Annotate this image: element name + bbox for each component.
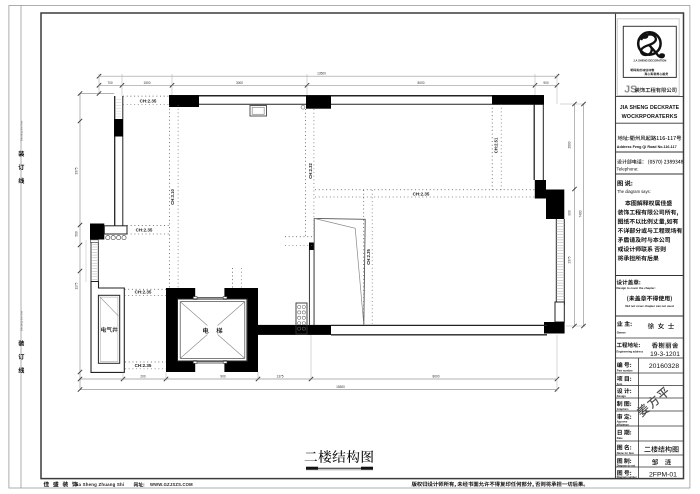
- svg-text:900: 900: [543, 81, 549, 85]
- svg-text:Binding the line: Binding the line: [19, 120, 23, 141]
- svg-text:Jia Sheng Zhuang Shi: Jia Sheng Zhuang Shi: [75, 482, 125, 487]
- svg-text:8000: 8000: [417, 81, 424, 85]
- svg-text:3000: 3000: [236, 81, 243, 85]
- svg-text:Item: Item: [617, 382, 623, 386]
- svg-text:Graphics: Graphics: [617, 407, 629, 411]
- svg-text:WWW.GZJSZS.COM: WWW.GZJSZS.COM: [150, 482, 193, 487]
- svg-text:Part number: Part number: [617, 369, 633, 373]
- svg-text:2FPM-01: 2FPM-01: [649, 471, 677, 478]
- svg-text:Diagram do not: Diagram do not: [617, 464, 636, 467]
- svg-text:7400: 7400: [579, 210, 583, 217]
- svg-text:1500: 1500: [143, 81, 150, 85]
- svg-text:1175: 1175: [74, 282, 78, 289]
- svg-text:Diagram number: Diagram number: [617, 476, 637, 479]
- svg-text:CH:2.32: CH:2.32: [308, 163, 313, 179]
- svg-text:CH:3.10: CH:3.10: [170, 189, 175, 205]
- svg-text:20160328: 20160328: [649, 363, 679, 370]
- svg-text:2600: 2600: [568, 141, 572, 148]
- svg-text:Owner: Owner: [617, 330, 627, 334]
- svg-text:JIA SHENG DECKRATE: JIA SHENG DECKRATE: [620, 105, 680, 111]
- svg-text:CH:2.35: CH:2.35: [136, 228, 153, 233]
- svg-text:The diagram says:: The diagram says:: [617, 189, 651, 194]
- svg-text:Did not cover chapter can not: Did not cover chapter can not used: [625, 304, 674, 308]
- svg-text:CH:2.51: CH:2.51: [494, 137, 499, 153]
- svg-text:Engineering address: Engineering address: [617, 349, 644, 353]
- svg-text:15500: 15500: [336, 385, 345, 389]
- svg-text:WOCKRPORATERKS: WOCKRPORATERKS: [622, 114, 678, 120]
- svg-text:Design to cover the chapter:: Design to cover the chapter:: [617, 286, 656, 290]
- svg-text:900: 900: [220, 375, 226, 379]
- svg-text:J.A SHENG DECORATION: J.A SHENG DECORATION: [633, 58, 666, 62]
- svg-text:Binding the line: Binding the line: [19, 310, 23, 331]
- svg-text:Telephone:: Telephone:: [617, 166, 639, 171]
- svg-text:CH:2.35: CH:2.35: [140, 99, 157, 104]
- svg-text:900: 900: [568, 210, 572, 216]
- svg-text:700: 700: [107, 81, 113, 85]
- svg-text:CH:2.35: CH:2.35: [413, 191, 430, 196]
- svg-text:CH:2.35: CH:2.35: [135, 363, 152, 368]
- svg-text:8000: 8000: [432, 375, 439, 379]
- svg-text:Design: Design: [617, 394, 626, 398]
- svg-text:3375: 3375: [74, 167, 78, 174]
- svg-text:2375: 2375: [568, 256, 572, 263]
- svg-text:19-3-1201: 19-3-1201: [650, 351, 680, 358]
- svg-text:efficiency: efficiency: [617, 422, 630, 426]
- svg-text:Name for face: Name for face: [617, 451, 635, 455]
- svg-text:JS: JS: [624, 84, 637, 96]
- svg-text:Address Feng Qi Road No.116-11: Address Feng Qi Road No.116-117: [617, 145, 677, 149]
- svg-text:1375: 1375: [276, 375, 283, 379]
- svg-text:CH:2.35: CH:2.35: [366, 249, 371, 265]
- svg-text:500: 500: [74, 231, 78, 237]
- svg-text:CH:2.35: CH:2.35: [135, 290, 152, 295]
- svg-text:200: 200: [140, 375, 146, 379]
- svg-text:13500: 13500: [317, 72, 326, 76]
- svg-text:Date: Date: [617, 436, 623, 440]
